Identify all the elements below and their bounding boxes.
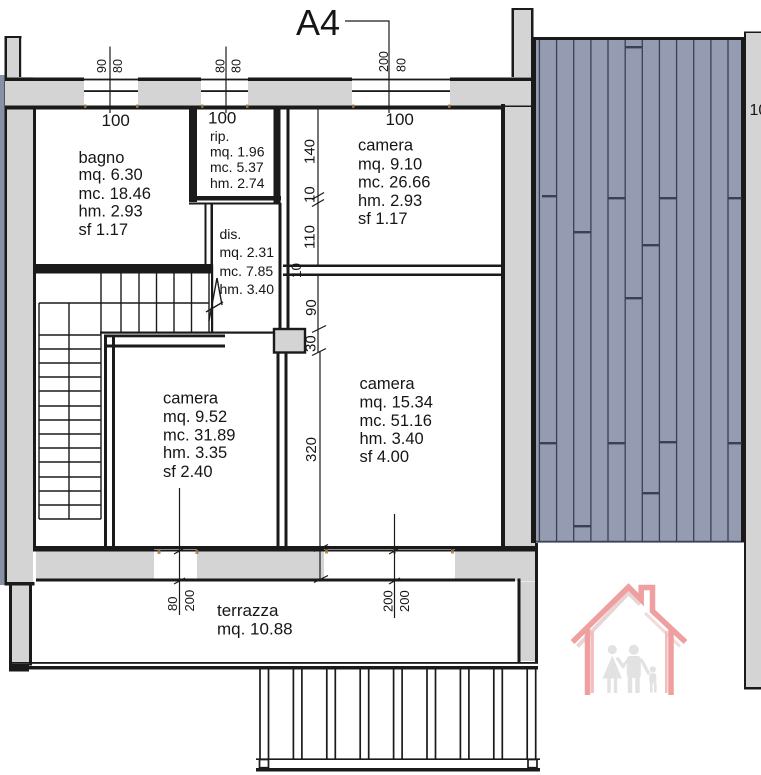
svg-text:camera: camera (358, 137, 414, 155)
svg-text:mc. 31.89: mc. 31.89 (163, 427, 235, 445)
svg-text:hm. 2.74: hm. 2.74 (210, 175, 265, 191)
svg-text:mc. 5.37: mc. 5.37 (210, 159, 264, 175)
svg-text:200: 200 (182, 590, 197, 612)
svg-text:80: 80 (111, 59, 125, 73)
svg-text:140: 140 (302, 139, 319, 164)
svg-text:30: 30 (303, 335, 320, 352)
svg-text:10: 10 (289, 263, 304, 278)
svg-text:90: 90 (95, 59, 109, 73)
svg-text:hm. 2.93: hm. 2.93 (79, 203, 143, 221)
svg-text:rip.: rip. (210, 128, 229, 144)
svg-text:sf 2.40: sf 2.40 (163, 463, 213, 481)
svg-text:camera: camera (360, 375, 416, 393)
svg-text:90: 90 (303, 299, 320, 316)
svg-text:mq. 2.31: mq. 2.31 (220, 244, 275, 260)
svg-text:mq. 9.10: mq. 9.10 (358, 155, 422, 173)
svg-text:sf 4.00: sf 4.00 (360, 448, 410, 466)
svg-text:bagno: bagno (79, 149, 125, 167)
svg-text:hm. 3.35: hm. 3.35 (163, 444, 227, 462)
svg-text:A4: A4 (296, 2, 340, 43)
svg-text:80: 80 (214, 59, 228, 73)
svg-text:110: 110 (302, 225, 319, 249)
svg-text:mc. 18.46: mc. 18.46 (79, 185, 151, 203)
svg-text:100: 100 (750, 102, 761, 119)
svg-text:hm. 3.40: hm. 3.40 (360, 430, 424, 448)
svg-text:mq. 6.30: mq. 6.30 (79, 166, 143, 184)
svg-text:80: 80 (230, 59, 244, 73)
svg-text:hm. 2.93: hm. 2.93 (358, 192, 422, 210)
svg-text:200: 200 (377, 51, 391, 72)
svg-text:mq. 10.88: mq. 10.88 (217, 620, 293, 639)
svg-text:mc. 51.16: mc. 51.16 (360, 412, 432, 430)
svg-text:mq. 15.34: mq. 15.34 (360, 394, 433, 412)
svg-text:mq. 9.52: mq. 9.52 (163, 408, 227, 426)
svg-text:hm. 3.40: hm. 3.40 (220, 281, 275, 297)
svg-text:dis.: dis. (220, 226, 242, 242)
svg-text:mc. 7.85: mc. 7.85 (220, 263, 274, 279)
svg-text:100: 100 (208, 108, 236, 127)
svg-text:10: 10 (302, 186, 319, 203)
svg-text:sf 1.17: sf 1.17 (358, 210, 408, 228)
svg-text:mc. 26.66: mc. 26.66 (358, 174, 430, 192)
svg-text:100: 100 (386, 110, 414, 129)
svg-text:mq. 1.96: mq. 1.96 (210, 144, 265, 160)
svg-text:camera: camera (163, 390, 219, 408)
svg-text:sf 1.17: sf 1.17 (79, 221, 129, 239)
svg-text:320: 320 (303, 437, 320, 462)
svg-text:80: 80 (165, 597, 180, 611)
svg-text:200: 200 (381, 590, 396, 612)
svg-text:200: 200 (397, 590, 412, 612)
svg-text:terrazza: terrazza (217, 601, 279, 620)
svg-text:80: 80 (395, 58, 409, 72)
svg-text:100: 100 (102, 111, 130, 130)
